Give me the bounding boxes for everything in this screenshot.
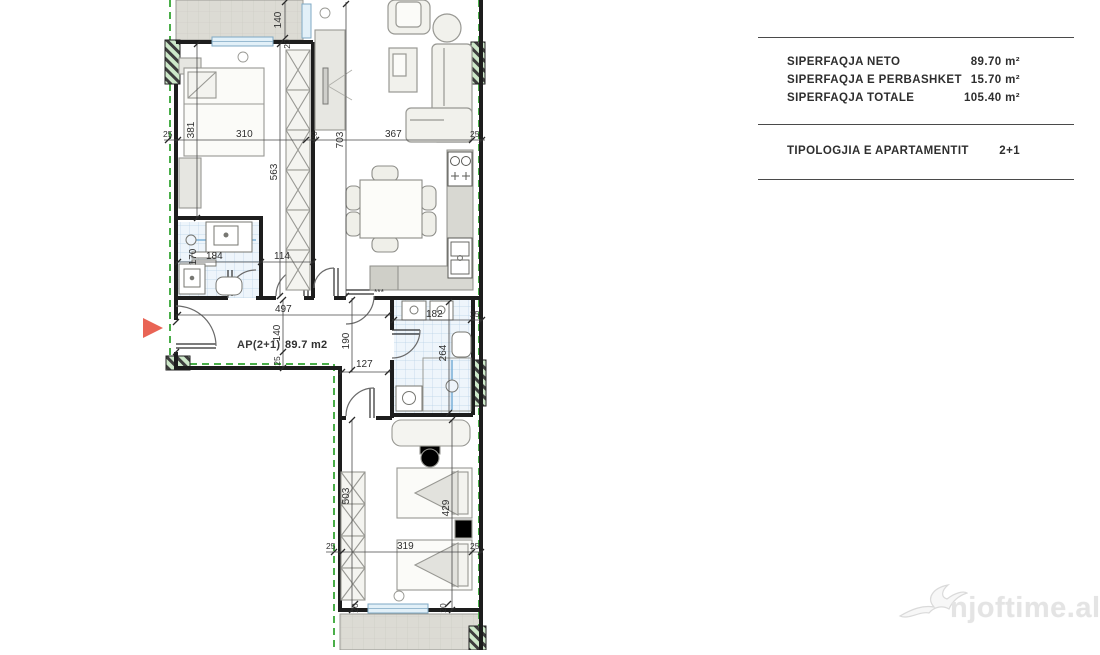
apartment-area: 89.7 m2	[285, 339, 327, 351]
dim-25-bath2: 25	[470, 309, 480, 319]
area-row-totale: SIPERFAQJA TOTALE 105.40 m²	[787, 89, 1020, 107]
area-label: SIPERFAQJA E PERBASHKET	[787, 71, 962, 89]
dim-127: 127	[356, 359, 373, 370]
watermark-text: njoftime.al	[950, 592, 1100, 625]
info-panel: SIPERFAQJA NETO 89.70 m² SIPERFAQJA E PE…	[758, 37, 1074, 180]
bed-1	[397, 468, 472, 518]
dim-310: 310	[236, 129, 253, 140]
kitchen-sink	[448, 238, 472, 278]
dim-114: 114	[274, 251, 290, 262]
panel-divider-bottom	[758, 179, 1074, 180]
dim-20-window-left: 20	[350, 603, 360, 613]
dim-170: 170	[188, 248, 199, 265]
floor-plan: 25 310 367 25 184 114 497 127 182 25 25 …	[0, 0, 560, 650]
apartment-code: AP(2+1)	[237, 339, 280, 351]
dim-319: 319	[397, 541, 414, 552]
watermark: njoftime.al	[898, 580, 1098, 642]
tv-unit	[315, 8, 352, 130]
typology-value: 2+1	[999, 142, 1020, 160]
area-value: 105.40 m²	[964, 89, 1020, 107]
dim-367: 367	[385, 129, 402, 140]
area-row-neto: SIPERFAQJA NETO 89.70 m²	[787, 53, 1020, 71]
dim-703: 703	[335, 131, 346, 148]
area-value: 15.70 m²	[971, 71, 1020, 89]
dim-25-corridor: 25	[272, 356, 282, 366]
area-value: 89.70 m²	[971, 53, 1020, 71]
dim-182: 182	[426, 309, 443, 320]
dim-25-top-left: 25	[163, 129, 173, 139]
stars-label: ***	[374, 287, 385, 297]
dim-20-balcony: 20	[282, 39, 292, 49]
typology-label: TIPOLOGJIA E APARTAMENTIT	[787, 142, 969, 160]
typology-row: TIPOLOGJIA E APARTAMENTIT 2+1	[787, 142, 1020, 160]
dim-25-top-right: 25	[470, 129, 480, 139]
dim-381: 381	[186, 121, 197, 138]
dim-497: 497	[275, 304, 292, 315]
dim-563: 563	[269, 163, 280, 180]
entrance-arrow-icon	[143, 318, 163, 338]
dim-190: 190	[341, 332, 352, 349]
dim-503: 503	[341, 487, 352, 504]
kitchen	[346, 150, 473, 290]
area-summary: SIPERFAQJA NETO 89.70 m² SIPERFAQJA E PE…	[758, 38, 1074, 124]
area-label: SIPERFAQJA TOTALE	[787, 89, 914, 107]
dining-table	[346, 166, 436, 252]
stove	[448, 152, 472, 186]
typology-block: TIPOLOGJIA E APARTAMENTIT 2+1	[758, 125, 1074, 179]
dim-20-top: 20	[309, 131, 319, 141]
dim-25-bottom-right: 25	[470, 541, 480, 551]
dim-264: 264	[438, 344, 449, 361]
area-label: SIPERFAQJA NETO	[787, 53, 900, 71]
dim-429: 429	[441, 499, 452, 516]
dim-140-balcony: 140	[273, 11, 284, 28]
dim-25-bottom-left: 25	[326, 541, 336, 551]
window-balcony	[302, 4, 311, 38]
dim-184: 184	[206, 251, 223, 262]
floor-plan-svg: 25 310 367 25 184 114 497 127 182 25 25 …	[0, 0, 560, 650]
living-room-furniture	[388, 0, 472, 142]
dim-20-window-right: 20	[438, 603, 448, 613]
area-row-perbashket: SIPERFAQJA E PERBASHKET 15.70 m²	[787, 71, 1020, 89]
balcony-bottom	[340, 614, 481, 650]
